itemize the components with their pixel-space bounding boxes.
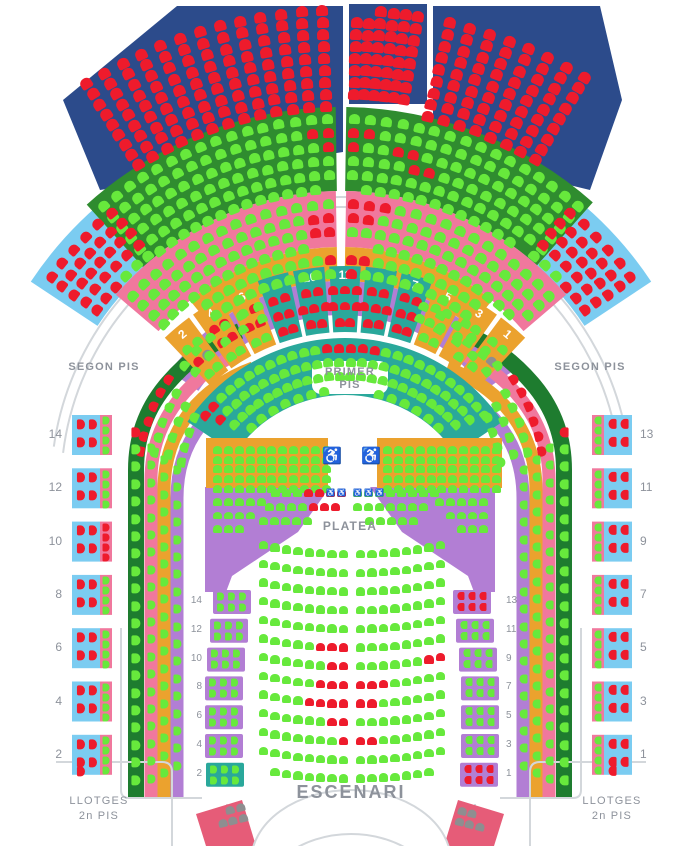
seat[interactable] (293, 489, 302, 497)
seat[interactable] (160, 508, 168, 517)
seat[interactable] (402, 771, 412, 779)
seat[interactable] (427, 475, 436, 483)
seat[interactable] (352, 286, 362, 295)
seat[interactable] (327, 587, 337, 595)
seat[interactable] (390, 698, 400, 706)
seat[interactable] (257, 456, 266, 464)
seat[interactable] (519, 465, 527, 474)
seat[interactable] (367, 737, 377, 745)
seat[interactable] (270, 543, 280, 551)
seat[interactable] (259, 634, 269, 642)
seat[interactable] (367, 606, 377, 614)
seat[interactable] (413, 620, 423, 628)
seat[interactable] (532, 682, 540, 691)
seat[interactable] (279, 44, 292, 56)
seat[interactable] (545, 583, 553, 592)
seat[interactable] (477, 679, 484, 687)
seat[interactable] (160, 716, 168, 725)
seat[interactable] (102, 683, 109, 691)
seat[interactable] (475, 661, 482, 669)
seat[interactable] (257, 485, 266, 493)
seat[interactable] (402, 659, 412, 667)
seat[interactable] (492, 456, 501, 464)
seat[interactable] (387, 7, 400, 19)
seat[interactable] (390, 623, 400, 631)
seat[interactable] (402, 753, 412, 761)
seat[interactable] (594, 650, 601, 658)
seat[interactable] (318, 53, 330, 64)
seat[interactable] (293, 696, 303, 704)
seat[interactable] (560, 462, 569, 472)
seat[interactable] (347, 170, 358, 180)
seat[interactable] (270, 562, 280, 570)
seat[interactable] (492, 465, 501, 473)
seat[interactable] (413, 676, 423, 684)
seat[interactable] (224, 446, 233, 454)
seat[interactable] (293, 715, 303, 723)
seat[interactable] (345, 318, 355, 327)
seat[interactable] (289, 456, 298, 464)
seat[interactable] (560, 758, 569, 768)
seat[interactable] (339, 606, 349, 614)
seat[interactable] (270, 581, 280, 589)
seat[interactable] (479, 525, 488, 533)
seat[interactable] (621, 526, 629, 536)
seat[interactable] (367, 550, 377, 558)
seat[interactable] (560, 584, 569, 594)
seat[interactable] (316, 549, 326, 557)
seat[interactable] (436, 634, 446, 642)
seat[interactable] (267, 456, 276, 464)
seat[interactable] (232, 690, 239, 698)
seat[interactable] (302, 90, 315, 102)
seat[interactable] (246, 485, 255, 493)
seat[interactable] (311, 446, 320, 454)
seat[interactable] (160, 560, 168, 569)
seat[interactable] (545, 670, 553, 679)
seat[interactable] (394, 446, 403, 454)
seat[interactable] (240, 603, 247, 611)
seat[interactable] (213, 446, 222, 454)
seat[interactable] (379, 568, 389, 576)
seat[interactable] (322, 456, 331, 464)
seat[interactable]: ♿ (326, 489, 335, 497)
seat[interactable] (367, 624, 377, 632)
seat[interactable] (306, 115, 318, 126)
seat[interactable] (457, 512, 466, 520)
seat[interactable] (132, 514, 141, 524)
seat[interactable] (545, 530, 553, 539)
seat[interactable] (147, 670, 155, 679)
seat[interactable] (316, 755, 326, 763)
seat[interactable] (349, 114, 360, 124)
seat[interactable] (270, 712, 280, 720)
seat[interactable] (594, 470, 601, 478)
seat[interactable] (304, 489, 313, 497)
seat[interactable] (519, 500, 527, 509)
seat[interactable] (519, 639, 527, 648)
seat[interactable] (545, 704, 553, 713)
seat[interactable] (594, 607, 601, 615)
seat[interactable] (270, 768, 280, 776)
seat[interactable] (424, 599, 434, 607)
seat[interactable] (280, 55, 293, 67)
seat[interactable] (621, 597, 629, 607)
seat[interactable] (390, 735, 400, 743)
seat[interactable] (545, 548, 553, 557)
seat[interactable] (377, 144, 389, 155)
seat[interactable] (305, 623, 315, 631)
seat[interactable] (224, 475, 233, 483)
seat[interactable] (311, 256, 323, 267)
seat[interactable] (300, 288, 311, 298)
seat[interactable] (397, 503, 406, 511)
seat[interactable] (222, 776, 229, 784)
seat[interactable] (488, 736, 495, 744)
seat[interactable] (278, 475, 287, 483)
seat[interactable] (282, 732, 292, 740)
seat[interactable] (594, 630, 601, 638)
seat[interactable] (246, 498, 255, 506)
seat[interactable] (545, 600, 553, 609)
seat[interactable] (436, 709, 446, 717)
seat[interactable] (594, 713, 601, 721)
seat[interactable] (472, 632, 479, 640)
seat[interactable] (102, 470, 109, 478)
seat[interactable] (609, 579, 617, 589)
seat[interactable] (402, 566, 412, 574)
seat[interactable] (346, 344, 356, 353)
seat[interactable] (388, 188, 401, 199)
seat[interactable] (282, 620, 292, 628)
seat[interactable] (210, 736, 217, 744)
seat[interactable] (519, 761, 527, 770)
seat[interactable] (322, 475, 331, 483)
seat[interactable] (316, 605, 326, 613)
seat[interactable] (213, 475, 222, 483)
seat[interactable] (102, 640, 109, 648)
seat[interactable] (379, 643, 389, 651)
seat[interactable] (459, 446, 468, 454)
seat[interactable] (160, 647, 168, 656)
seat[interactable] (213, 498, 222, 506)
seat[interactable] (160, 751, 168, 760)
seat[interactable] (160, 682, 168, 691)
seat[interactable] (229, 603, 236, 611)
seat[interactable] (448, 485, 457, 493)
seat[interactable] (519, 535, 527, 544)
seat[interactable] (532, 595, 540, 604)
seat[interactable] (364, 129, 376, 140)
seat[interactable] (356, 681, 366, 689)
seat[interactable] (446, 498, 455, 506)
seat[interactable] (211, 776, 218, 784)
seat[interactable]: ♿ (375, 489, 384, 497)
seat[interactable] (316, 717, 326, 725)
seat[interactable] (246, 446, 255, 454)
seat[interactable] (403, 57, 417, 69)
seat[interactable] (402, 547, 412, 555)
seat[interactable] (147, 496, 155, 505)
seat[interactable] (316, 5, 328, 16)
seat[interactable] (405, 446, 414, 454)
seat[interactable] (213, 485, 222, 493)
seat[interactable] (459, 456, 468, 464)
seat[interactable] (300, 66, 313, 78)
seat[interactable] (102, 703, 109, 711)
seat[interactable] (222, 765, 229, 773)
seat[interactable] (532, 647, 540, 656)
seat[interactable] (413, 601, 423, 609)
seat[interactable] (436, 541, 446, 549)
seat[interactable] (173, 639, 181, 648)
seat[interactable] (477, 736, 484, 744)
seat[interactable] (327, 568, 337, 576)
seat[interactable] (339, 699, 349, 707)
seat[interactable] (339, 569, 349, 577)
seat[interactable] (390, 679, 400, 687)
seat[interactable] (334, 318, 344, 327)
seat[interactable] (297, 30, 310, 42)
seat[interactable] (327, 662, 337, 670)
seat[interactable] (594, 500, 601, 508)
seat[interactable] (424, 581, 434, 589)
seat[interactable] (323, 213, 334, 223)
seat[interactable] (479, 512, 488, 520)
seat[interactable] (488, 718, 495, 726)
seat[interactable] (277, 146, 289, 157)
seat[interactable] (356, 699, 366, 707)
seat[interactable] (297, 271, 310, 282)
seat[interactable] (424, 543, 434, 551)
seat[interactable] (560, 427, 569, 437)
seat[interactable] (270, 655, 280, 663)
seat[interactable] (402, 622, 412, 630)
seat[interactable] (293, 603, 303, 611)
seat[interactable] (477, 747, 484, 755)
seat[interactable] (132, 740, 141, 750)
seat[interactable] (359, 256, 371, 267)
seat[interactable] (532, 769, 540, 778)
seat[interactable] (435, 498, 444, 506)
seat[interactable] (390, 642, 400, 650)
seat[interactable] (160, 577, 168, 586)
seat[interactable] (424, 712, 434, 720)
seat[interactable] (459, 485, 468, 493)
seat[interactable] (224, 525, 233, 533)
seat[interactable] (173, 692, 181, 701)
seat[interactable] (379, 605, 389, 613)
seat[interactable] (311, 465, 320, 473)
seat[interactable] (246, 475, 255, 483)
seat[interactable] (545, 635, 553, 644)
seat[interactable] (340, 286, 350, 295)
seat[interactable] (77, 473, 85, 483)
seat[interactable] (416, 456, 425, 464)
seat[interactable] (370, 303, 381, 313)
seat[interactable] (132, 479, 141, 489)
seat[interactable] (560, 653, 569, 663)
seat[interactable] (317, 17, 329, 28)
seat[interactable] (408, 503, 417, 511)
seat[interactable] (173, 622, 181, 631)
seat[interactable] (77, 491, 85, 501)
seat[interactable] (492, 485, 501, 493)
seat[interactable] (147, 757, 155, 766)
seat[interactable] (306, 200, 318, 211)
seat[interactable] (102, 480, 109, 488)
seat[interactable] (173, 570, 181, 579)
seat[interactable] (235, 485, 244, 493)
seat[interactable] (300, 456, 309, 464)
seat[interactable]: ♿ (364, 489, 373, 497)
seat[interactable] (322, 199, 333, 209)
seat[interactable] (339, 718, 349, 726)
seat[interactable] (351, 17, 363, 28)
seat[interactable] (305, 679, 315, 687)
seat[interactable] (132, 705, 141, 715)
seat[interactable] (301, 78, 314, 90)
seat[interactable] (89, 579, 97, 589)
seat[interactable] (560, 740, 569, 750)
seat[interactable] (173, 552, 181, 561)
seat[interactable] (477, 690, 484, 698)
seat[interactable] (257, 465, 266, 473)
seat[interactable] (339, 625, 349, 633)
seat[interactable] (160, 525, 168, 534)
seat[interactable] (173, 483, 181, 492)
seat[interactable] (322, 446, 331, 454)
seat[interactable] (323, 156, 334, 166)
seat[interactable] (305, 773, 315, 781)
seat[interactable] (437, 456, 446, 464)
seat[interactable] (296, 186, 308, 197)
seat[interactable] (173, 726, 181, 735)
seat[interactable] (215, 621, 222, 629)
seat[interactable] (318, 65, 330, 76)
seat[interactable] (413, 770, 423, 778)
seat[interactable] (282, 695, 292, 703)
seat[interactable] (282, 657, 292, 665)
seat[interactable] (379, 624, 389, 632)
seat[interactable] (282, 545, 292, 553)
seat[interactable] (405, 465, 414, 473)
seat[interactable] (221, 707, 228, 715)
seat[interactable] (160, 664, 168, 673)
seat[interactable] (413, 695, 423, 703)
seat[interactable] (545, 513, 553, 522)
seat[interactable] (466, 679, 473, 687)
seat[interactable] (594, 737, 601, 745)
seat[interactable] (481, 446, 490, 454)
seat[interactable] (278, 446, 287, 454)
seat[interactable] (213, 525, 222, 533)
seat[interactable] (519, 605, 527, 614)
seat[interactable] (594, 683, 601, 691)
seat[interactable] (173, 518, 181, 527)
seat[interactable] (89, 757, 97, 767)
seat[interactable] (367, 681, 377, 689)
seat[interactable] (519, 570, 527, 579)
seat[interactable] (609, 419, 617, 429)
seat[interactable] (210, 707, 217, 715)
seat[interactable] (281, 232, 294, 244)
seat[interactable] (448, 446, 457, 454)
seat[interactable] (532, 716, 540, 725)
seat[interactable] (466, 707, 473, 715)
seat[interactable] (356, 606, 366, 614)
seat[interactable] (310, 185, 322, 196)
seat[interactable] (621, 739, 629, 749)
seat[interactable] (397, 489, 406, 497)
seat[interactable] (278, 456, 287, 464)
seat[interactable] (147, 443, 155, 452)
seat[interactable] (594, 577, 601, 585)
seat[interactable] (224, 498, 233, 506)
seat[interactable] (309, 171, 321, 182)
seat[interactable] (519, 726, 527, 735)
seat[interactable] (532, 751, 540, 760)
seat[interactable] (347, 213, 358, 223)
seat[interactable] (594, 757, 601, 765)
seat[interactable] (609, 757, 617, 767)
seat[interactable] (283, 79, 296, 91)
seat[interactable] (359, 269, 371, 280)
seat[interactable] (424, 562, 434, 570)
seat[interactable] (282, 583, 292, 591)
seat[interactable] (259, 517, 268, 525)
seat[interactable] (402, 603, 412, 611)
seat[interactable] (270, 693, 280, 701)
seat[interactable] (464, 650, 471, 658)
seat[interactable] (102, 713, 109, 721)
seat[interactable] (322, 344, 333, 354)
seat[interactable] (235, 475, 244, 483)
seat[interactable] (226, 621, 233, 629)
seat[interactable] (367, 662, 377, 670)
seat[interactable] (532, 699, 540, 708)
seat[interactable] (160, 455, 168, 464)
seat[interactable] (621, 704, 629, 714)
seat[interactable] (376, 172, 388, 183)
seat[interactable] (375, 6, 388, 18)
seat[interactable] (461, 621, 468, 629)
seat[interactable] (316, 643, 326, 651)
seat[interactable] (437, 465, 446, 473)
seat[interactable] (375, 503, 384, 511)
seat[interactable] (173, 465, 181, 474)
seat[interactable] (147, 530, 155, 539)
seat[interactable] (594, 703, 601, 711)
seat[interactable] (390, 604, 400, 612)
seat[interactable] (366, 287, 377, 297)
seat[interactable] (316, 773, 326, 781)
seat[interactable] (305, 548, 315, 556)
seat[interactable] (413, 583, 423, 591)
seat[interactable] (436, 616, 446, 624)
seat[interactable] (519, 709, 527, 718)
seat[interactable] (259, 709, 269, 717)
seat[interactable] (221, 679, 228, 687)
seat[interactable] (316, 318, 327, 328)
seat[interactable] (383, 475, 392, 483)
seat[interactable] (427, 456, 436, 464)
seat[interactable] (246, 465, 255, 473)
seat[interactable] (235, 498, 244, 506)
seat[interactable] (224, 485, 233, 493)
seat[interactable] (292, 517, 301, 525)
seat[interactable] (77, 632, 85, 642)
